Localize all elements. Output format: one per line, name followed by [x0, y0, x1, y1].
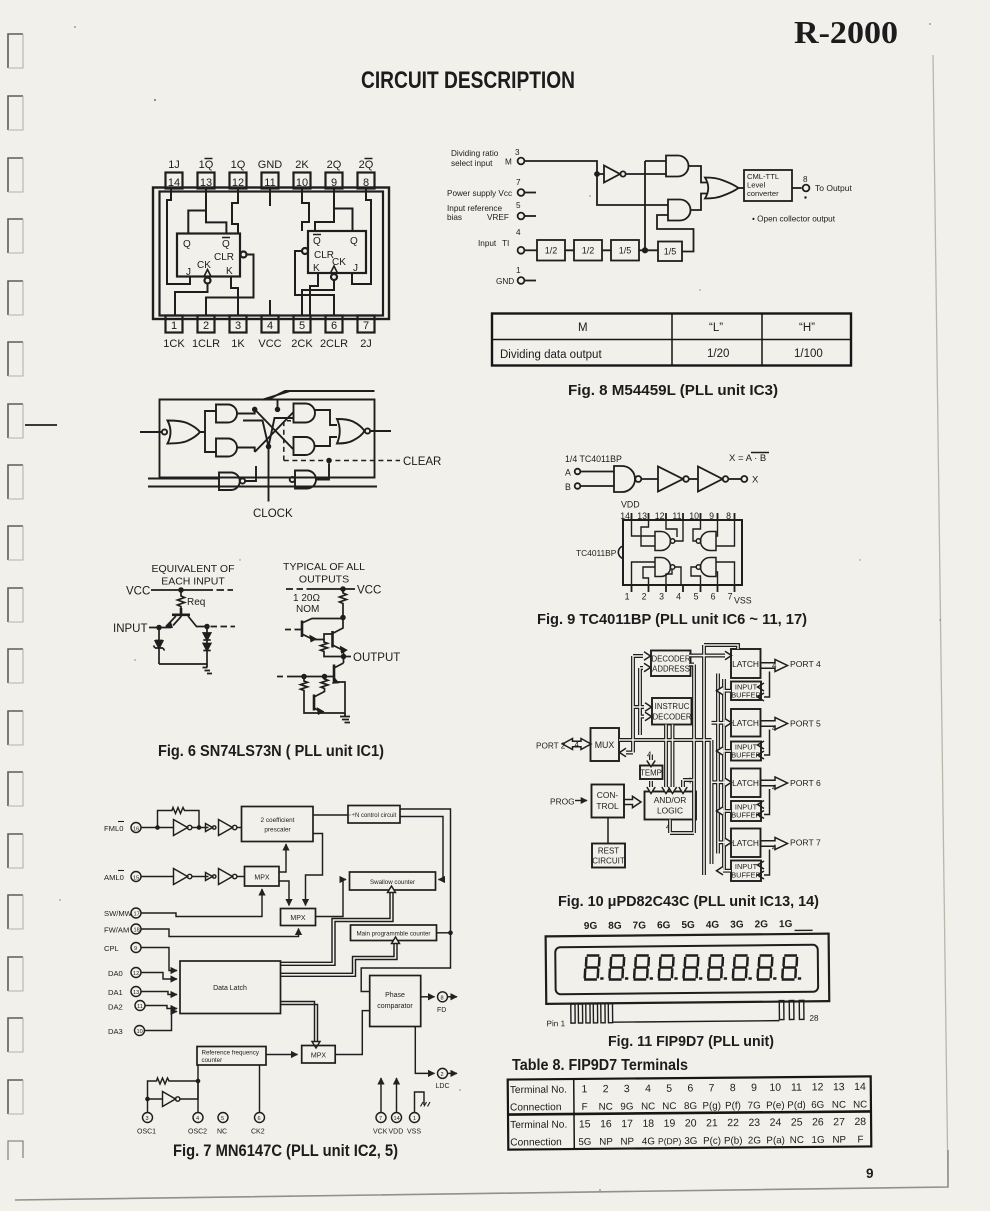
svg-text:VSS: VSS — [734, 596, 752, 606]
svg-text:MPX: MPX — [311, 1053, 327, 1060]
svg-text:12: 12 — [232, 177, 244, 189]
svg-text:To Output: To Output — [815, 183, 852, 193]
svg-text:10: 10 — [689, 511, 699, 521]
svg-text:Input: Input — [478, 239, 497, 248]
svg-text:DA3: DA3 — [108, 1027, 123, 1036]
svg-text:11: 11 — [264, 177, 275, 189]
svg-text:LATCH: LATCH — [732, 659, 759, 669]
svg-text:10: 10 — [296, 177, 308, 189]
svg-text:6: 6 — [258, 1116, 261, 1122]
svg-text:P(e): P(e) — [766, 1100, 785, 1111]
svg-text:1/5: 1/5 — [619, 246, 632, 256]
svg-text:NOM: NOM — [296, 604, 319, 615]
svg-text:24: 24 — [770, 1117, 782, 1129]
svg-text:15: 15 — [133, 876, 139, 882]
svg-text:1: 1 — [581, 1083, 587, 1095]
svg-text:CON-: CON- — [597, 790, 619, 800]
svg-text:2Q: 2Q — [359, 159, 374, 171]
svg-text:Req: Req — [187, 597, 205, 608]
svg-text:5G: 5G — [578, 1137, 591, 1148]
svg-text:1 20Ω: 1 20Ω — [293, 593, 320, 604]
svg-text:14: 14 — [620, 511, 630, 521]
svg-text:8: 8 — [441, 995, 444, 1001]
svg-text:9: 9 — [709, 511, 714, 521]
svg-text:2: 2 — [203, 320, 209, 332]
svg-text:7: 7 — [728, 592, 733, 602]
svg-text:BUFFER: BUFFER — [731, 691, 761, 700]
svg-text:1CLR: 1CLR — [192, 338, 220, 350]
svg-text:X: X — [752, 475, 759, 486]
svg-text:8: 8 — [363, 177, 369, 189]
svg-text:NP: NP — [599, 1137, 613, 1148]
svg-text:counter: counter — [202, 1057, 223, 1064]
svg-text:F: F — [582, 1102, 588, 1113]
svg-text:Dividing ratio: Dividing ratio — [451, 149, 499, 158]
svg-text:P(g): P(g) — [702, 1101, 721, 1112]
svg-text:16: 16 — [600, 1118, 612, 1130]
svg-text:÷N control circuit: ÷N control circuit — [352, 813, 397, 819]
svg-text:TC4011BP: TC4011BP — [576, 548, 617, 558]
svg-text:Reference frequency: Reference frequency — [202, 1050, 260, 1057]
svg-text:Pin 1: Pin 1 — [546, 1019, 565, 1028]
svg-text:OUTPUT: OUTPUT — [353, 652, 400, 664]
svg-text:Fig. 7 MN6147C (PLL unit IC2,: Fig. 7 MN6147C (PLL unit IC2, 5) — [173, 1141, 398, 1160]
svg-text:F: F — [857, 1134, 863, 1145]
svg-text:5: 5 — [694, 592, 699, 602]
svg-text:Table 8. FIP9D7 Terminals: Table 8. FIP9D7 Terminals — [512, 1057, 688, 1074]
svg-text:21: 21 — [706, 1117, 718, 1129]
svg-text:1: 1 — [171, 320, 177, 332]
svg-text:NP: NP — [620, 1136, 634, 1147]
svg-text:1G: 1G — [779, 919, 793, 930]
svg-text:ADDRESS: ADDRESS — [652, 665, 690, 674]
svg-text:Fig. 8 M54459L (PLL unit IC3): Fig. 8 M54459L (PLL unit IC3) — [568, 383, 778, 399]
svg-text:10: 10 — [137, 1029, 143, 1035]
svg-text:CK2: CK2 — [251, 1129, 265, 1136]
svg-text:Q: Q — [313, 236, 321, 247]
svg-text:VCC: VCC — [357, 585, 381, 597]
svg-text:TI: TI — [502, 239, 509, 248]
svg-text:4G: 4G — [642, 1136, 655, 1147]
svg-text:28: 28 — [854, 1116, 866, 1128]
svg-text:VSS: VSS — [407, 1129, 421, 1136]
svg-text:9: 9 — [134, 946, 137, 952]
svg-text:P(f): P(f) — [725, 1101, 741, 1112]
svg-text:6: 6 — [711, 592, 716, 602]
svg-text:CK: CK — [332, 257, 346, 268]
svg-text:14: 14 — [168, 177, 180, 189]
svg-text:1Q: 1Q — [199, 159, 214, 171]
svg-text:16: 16 — [133, 827, 139, 833]
svg-text:FW/AM: FW/AM — [104, 926, 129, 935]
svg-text:AML0: AML0 — [104, 873, 124, 882]
svg-text:19: 19 — [664, 1118, 676, 1130]
svg-text:PROG: PROG — [550, 797, 575, 807]
svg-text:4: 4 — [267, 320, 273, 332]
svg-text:7: 7 — [709, 1082, 715, 1094]
svg-text:REST: REST — [598, 847, 619, 856]
svg-text:DA2: DA2 — [108, 1003, 123, 1012]
svg-text:7G: 7G — [748, 1100, 761, 1111]
svg-text:NC: NC — [641, 1101, 655, 1112]
svg-text:Phase: Phase — [385, 992, 405, 999]
svg-text:11: 11 — [137, 1004, 143, 1010]
svg-text:Fig. 6 SN74LS73N ( PLL unit I: Fig. 6 SN74LS73N ( PLL unit IC1) — [158, 743, 384, 760]
svg-text:Q: Q — [183, 239, 191, 250]
svg-text:INPUT: INPUT — [113, 623, 148, 635]
svg-text:TYPICAL OF ALL: TYPICAL OF ALL — [283, 561, 365, 573]
svg-text:1: 1 — [625, 592, 630, 602]
svg-text:6G: 6G — [811, 1100, 824, 1111]
svg-text:GND: GND — [496, 277, 514, 286]
svg-text:9G: 9G — [584, 921, 598, 932]
svg-text:LATCH: LATCH — [732, 718, 759, 728]
svg-text:9G: 9G — [620, 1101, 633, 1112]
svg-text:18: 18 — [642, 1118, 654, 1130]
svg-text:13: 13 — [133, 990, 139, 996]
svg-text:11: 11 — [791, 1082, 802, 1094]
svg-text:1Q: 1Q — [231, 159, 246, 171]
svg-text:CLR: CLR — [214, 252, 234, 263]
svg-text:1G: 1G — [811, 1135, 824, 1146]
svg-text:Swallow counter: Swallow counter — [370, 879, 415, 886]
svg-text:6G: 6G — [657, 920, 671, 931]
svg-text:10: 10 — [769, 1082, 781, 1094]
svg-text:CPL: CPL — [104, 944, 119, 953]
svg-text:VCC: VCC — [258, 338, 281, 350]
svg-text:13: 13 — [200, 177, 212, 189]
svg-text:7G: 7G — [633, 920, 647, 931]
svg-text:K: K — [226, 266, 233, 277]
svg-text:MPX: MPX — [254, 875, 270, 882]
svg-text:J: J — [186, 267, 191, 278]
svg-text:NP: NP — [832, 1135, 846, 1146]
svg-text:2CLR: 2CLR — [320, 338, 348, 350]
svg-text:“H”: “H” — [799, 322, 815, 334]
svg-text:4: 4 — [645, 1083, 651, 1095]
svg-text:18: 18 — [134, 928, 140, 934]
svg-text:NC: NC — [217, 1129, 227, 1136]
svg-text:12: 12 — [812, 1081, 824, 1093]
svg-text:8: 8 — [803, 175, 808, 184]
svg-text:Connection: Connection — [510, 1137, 562, 1148]
svg-text:23: 23 — [748, 1117, 760, 1129]
svg-text:CIRCUIT DESCRIPTION: CIRCUIT DESCRIPTION — [361, 67, 575, 94]
svg-text:12: 12 — [655, 511, 665, 521]
svg-text:Q: Q — [350, 236, 358, 247]
svg-text:PORT 5: PORT 5 — [790, 719, 821, 729]
svg-text:BUFFER: BUFFER — [731, 811, 761, 820]
svg-text:Power supply Vcc: Power supply Vcc — [447, 189, 512, 198]
svg-text:Q: Q — [222, 239, 230, 250]
svg-text:1/2: 1/2 — [545, 246, 558, 256]
svg-text:Fig. 9 TC4011BP (PLL unit IC6: Fig. 9 TC4011BP (PLL unit IC6 ~ 11, 17) — [537, 611, 807, 628]
svg-text:4: 4 — [196, 1116, 199, 1122]
svg-text:26: 26 — [812, 1116, 824, 1128]
svg-text:NC: NC — [832, 1100, 846, 1111]
svg-text:LATCH: LATCH — [732, 838, 759, 848]
svg-text:P(b): P(b) — [724, 1136, 743, 1147]
svg-text:• Open collector output: • Open collector output — [752, 215, 836, 224]
svg-text:1/4 TC4011BP: 1/4 TC4011BP — [565, 454, 622, 464]
svg-text:VCK: VCK — [373, 1129, 388, 1136]
svg-text:P(d): P(d) — [787, 1100, 806, 1111]
svg-text:prescaler: prescaler — [264, 827, 291, 834]
svg-text:VDD: VDD — [621, 500, 640, 510]
svg-text:1: 1 — [516, 266, 521, 275]
svg-text:11: 11 — [672, 511, 681, 521]
svg-text:Terminal No.: Terminal No. — [510, 1120, 567, 1131]
svg-text:PORT 7: PORT 7 — [790, 838, 821, 848]
svg-text:3: 3 — [515, 148, 520, 157]
svg-text:NC: NC — [790, 1135, 804, 1146]
svg-text:7: 7 — [379, 1116, 382, 1122]
svg-text:AND/OR: AND/OR — [654, 795, 687, 805]
svg-text:8G: 8G — [608, 921, 622, 932]
svg-text:A: A — [565, 468, 571, 478]
svg-text:converter: converter — [747, 189, 779, 198]
svg-text:P(DP): P(DP) — [658, 1136, 682, 1146]
svg-text:14: 14 — [394, 1116, 400, 1122]
svg-text:6: 6 — [687, 1082, 693, 1094]
svg-text:LATCH: LATCH — [732, 778, 759, 788]
svg-text:3: 3 — [624, 1083, 630, 1095]
svg-text:Connection: Connection — [510, 1102, 562, 1113]
svg-text:SW/MW: SW/MW — [104, 909, 133, 918]
svg-text:P(c): P(c) — [703, 1136, 721, 1147]
svg-text:9: 9 — [331, 177, 337, 189]
svg-text:FD: FD — [437, 1007, 446, 1014]
svg-text:25: 25 — [791, 1117, 803, 1129]
svg-text:M: M — [505, 158, 512, 167]
svg-text:5G: 5G — [681, 920, 695, 931]
svg-text:OUTPUTS: OUTPUTS — [299, 574, 349, 586]
svg-text:5: 5 — [221, 1116, 224, 1122]
svg-text:CIRCUIT: CIRCUIT — [592, 857, 625, 866]
svg-text:OSC1: OSC1 — [137, 1129, 156, 1136]
svg-text:TEMP: TEMP — [640, 769, 662, 778]
svg-text:LDC: LDC — [436, 1083, 450, 1090]
svg-text:6: 6 — [331, 320, 337, 332]
svg-text:22: 22 — [727, 1117, 739, 1129]
svg-text:1: 1 — [413, 1116, 416, 1122]
svg-text:FML0: FML0 — [104, 824, 123, 833]
svg-text:13: 13 — [637, 511, 647, 521]
svg-text:20: 20 — [685, 1117, 697, 1129]
svg-text:4G: 4G — [706, 920, 720, 931]
svg-text:“L”: “L” — [709, 322, 723, 334]
svg-text:8: 8 — [730, 1082, 736, 1094]
svg-text:2J: 2J — [360, 338, 372, 350]
svg-text:CLEAR: CLEAR — [403, 456, 441, 468]
svg-text:comparator: comparator — [377, 1003, 413, 1010]
svg-text:14: 14 — [854, 1081, 866, 1093]
svg-text:7: 7 — [516, 178, 521, 187]
svg-text:2: 2 — [441, 1072, 444, 1078]
svg-text:1K: 1K — [231, 338, 245, 350]
svg-text:Input reference: Input reference — [447, 204, 503, 213]
svg-text:2G: 2G — [748, 1135, 761, 1146]
svg-text:OSC2: OSC2 — [188, 1129, 207, 1136]
svg-text:2G: 2G — [755, 919, 769, 930]
svg-text:17: 17 — [621, 1118, 633, 1130]
svg-text:5: 5 — [516, 201, 521, 210]
svg-text:1/20: 1/20 — [707, 348, 729, 360]
svg-text:2Q: 2Q — [327, 159, 342, 171]
svg-text:CLR: CLR — [314, 250, 334, 261]
svg-text:8: 8 — [726, 511, 731, 521]
svg-text:4: 4 — [676, 592, 681, 602]
svg-text:M: M — [578, 322, 588, 334]
svg-text:2: 2 — [642, 592, 647, 602]
svg-text:NC: NC — [662, 1101, 676, 1112]
svg-text:3: 3 — [235, 320, 241, 332]
svg-text:TROL: TROL — [596, 801, 619, 811]
svg-text:2 coefficient: 2 coefficient — [261, 817, 295, 824]
svg-text:13: 13 — [833, 1081, 845, 1093]
svg-text:NC: NC — [599, 1102, 613, 1113]
svg-text:DECODER: DECODER — [653, 713, 692, 722]
svg-text:CK: CK — [197, 260, 211, 271]
svg-text:1J: 1J — [168, 159, 180, 171]
svg-text:DECODER: DECODER — [652, 655, 691, 664]
svg-text:9: 9 — [751, 1082, 757, 1094]
svg-text:9: 9 — [866, 1166, 874, 1181]
svg-text:7: 7 — [363, 320, 369, 332]
svg-text:3: 3 — [659, 592, 664, 602]
svg-text:NC: NC — [853, 1099, 867, 1110]
svg-text:5: 5 — [299, 320, 305, 332]
svg-text:Terminal No.: Terminal No. — [510, 1085, 567, 1096]
svg-text:15: 15 — [579, 1118, 591, 1130]
svg-text:J: J — [353, 263, 358, 274]
svg-text:28: 28 — [809, 1014, 819, 1023]
svg-text:GND: GND — [258, 159, 283, 171]
svg-text:VCC: VCC — [126, 586, 150, 598]
svg-text:DA0: DA0 — [108, 969, 123, 978]
svg-text:12: 12 — [133, 971, 139, 977]
svg-text:X = A · B: X = A · B — [729, 453, 766, 464]
svg-text:3: 3 — [146, 1116, 149, 1122]
svg-text:MUX: MUX — [595, 740, 615, 750]
svg-text:LOGIC: LOGIC — [657, 806, 683, 816]
svg-text:1/5: 1/5 — [664, 247, 677, 257]
svg-text:INSTRUC: INSTRUC — [655, 702, 690, 711]
svg-text:Dividing data output: Dividing data output — [500, 349, 602, 361]
svg-text:EACH INPUT: EACH INPUT — [161, 576, 225, 588]
svg-text:CLOCK: CLOCK — [253, 508, 293, 520]
svg-text:1/2: 1/2 — [582, 246, 595, 256]
svg-text:Fig. 11 FIP9D7 (PLL unit): Fig. 11 FIP9D7 (PLL unit) — [608, 1033, 774, 1050]
svg-text:17: 17 — [134, 912, 140, 918]
svg-text:5: 5 — [666, 1083, 672, 1095]
svg-text:2CK: 2CK — [291, 338, 313, 350]
svg-text:VDD: VDD — [389, 1129, 404, 1136]
svg-text:select input: select input — [451, 159, 493, 168]
svg-text:27: 27 — [833, 1116, 845, 1128]
svg-text:VREF: VREF — [487, 213, 509, 222]
svg-text:DA1: DA1 — [108, 988, 123, 997]
svg-text:1CK: 1CK — [163, 338, 185, 350]
svg-text:Data Latch: Data Latch — [213, 985, 247, 992]
svg-text:EQUIVALENT OF: EQUIVALENT OF — [151, 563, 234, 575]
svg-text:R-2000: R-2000 — [794, 14, 898, 50]
svg-text:bias: bias — [447, 213, 462, 222]
svg-text:4: 4 — [516, 228, 521, 237]
svg-text:B: B — [565, 482, 571, 492]
svg-text:PORT 4: PORT 4 — [790, 659, 821, 669]
svg-text:2: 2 — [603, 1083, 609, 1095]
svg-text:3G: 3G — [730, 919, 744, 930]
svg-text:Main programmble counter: Main programmble counter — [357, 931, 431, 938]
svg-text:P(a): P(a) — [766, 1135, 785, 1146]
svg-text:8G: 8G — [684, 1101, 697, 1112]
svg-text:1/100: 1/100 — [794, 348, 823, 360]
svg-text:Fig. 10 μPD82C43C (PLL unit I: Fig. 10 μPD82C43C (PLL unit IC13, 14) — [558, 893, 819, 910]
svg-text:2K: 2K — [295, 159, 309, 171]
svg-text:PORT 6: PORT 6 — [790, 778, 821, 788]
svg-text:MPX: MPX — [290, 915, 306, 922]
svg-text:K: K — [313, 263, 320, 274]
svg-text:3G: 3G — [684, 1136, 697, 1147]
svg-text:PORT 2: PORT 2 — [536, 742, 566, 751]
